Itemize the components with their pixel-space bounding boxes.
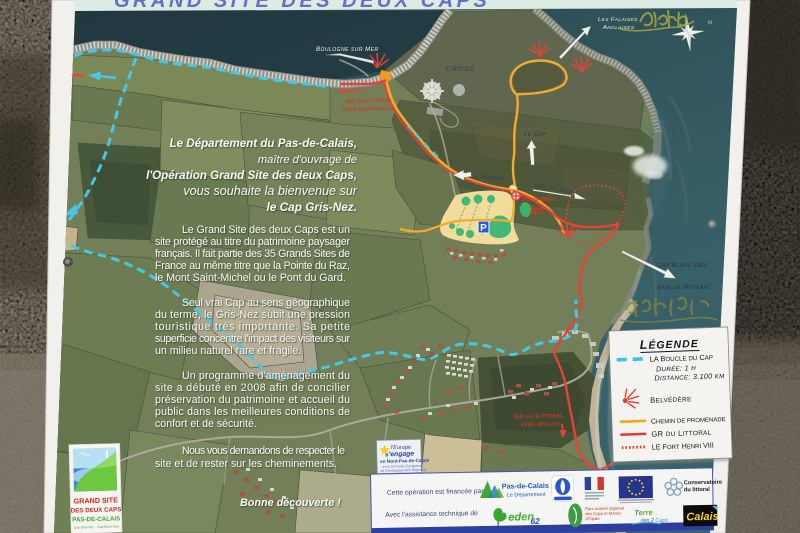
svg-text:DES DEUX CAPS: DES DEUX CAPS xyxy=(71,506,122,514)
svg-text:PAS-DE-CALAIS: PAS-DE-CALAIS xyxy=(72,515,120,523)
svg-text:du littoral: du littoral xyxy=(684,487,710,493)
svg-text:Conservatoire: Conservatoire xyxy=(684,480,722,487)
svg-text:GRAND SITE: GRAND SITE xyxy=(74,495,119,505)
svg-text:Le Département: Le Département xyxy=(507,492,546,499)
svg-text:Terre: Terre xyxy=(634,508,653,517)
svg-text:Calais: Calais xyxy=(686,511,719,524)
svg-text:s'engage: s'engage xyxy=(385,451,415,459)
svg-text:Pas-de-Calais: Pas-de-Calais xyxy=(502,481,549,491)
svg-text:d'Opale: d'Opale xyxy=(585,516,600,521)
svg-text:62: 62 xyxy=(530,516,540,526)
